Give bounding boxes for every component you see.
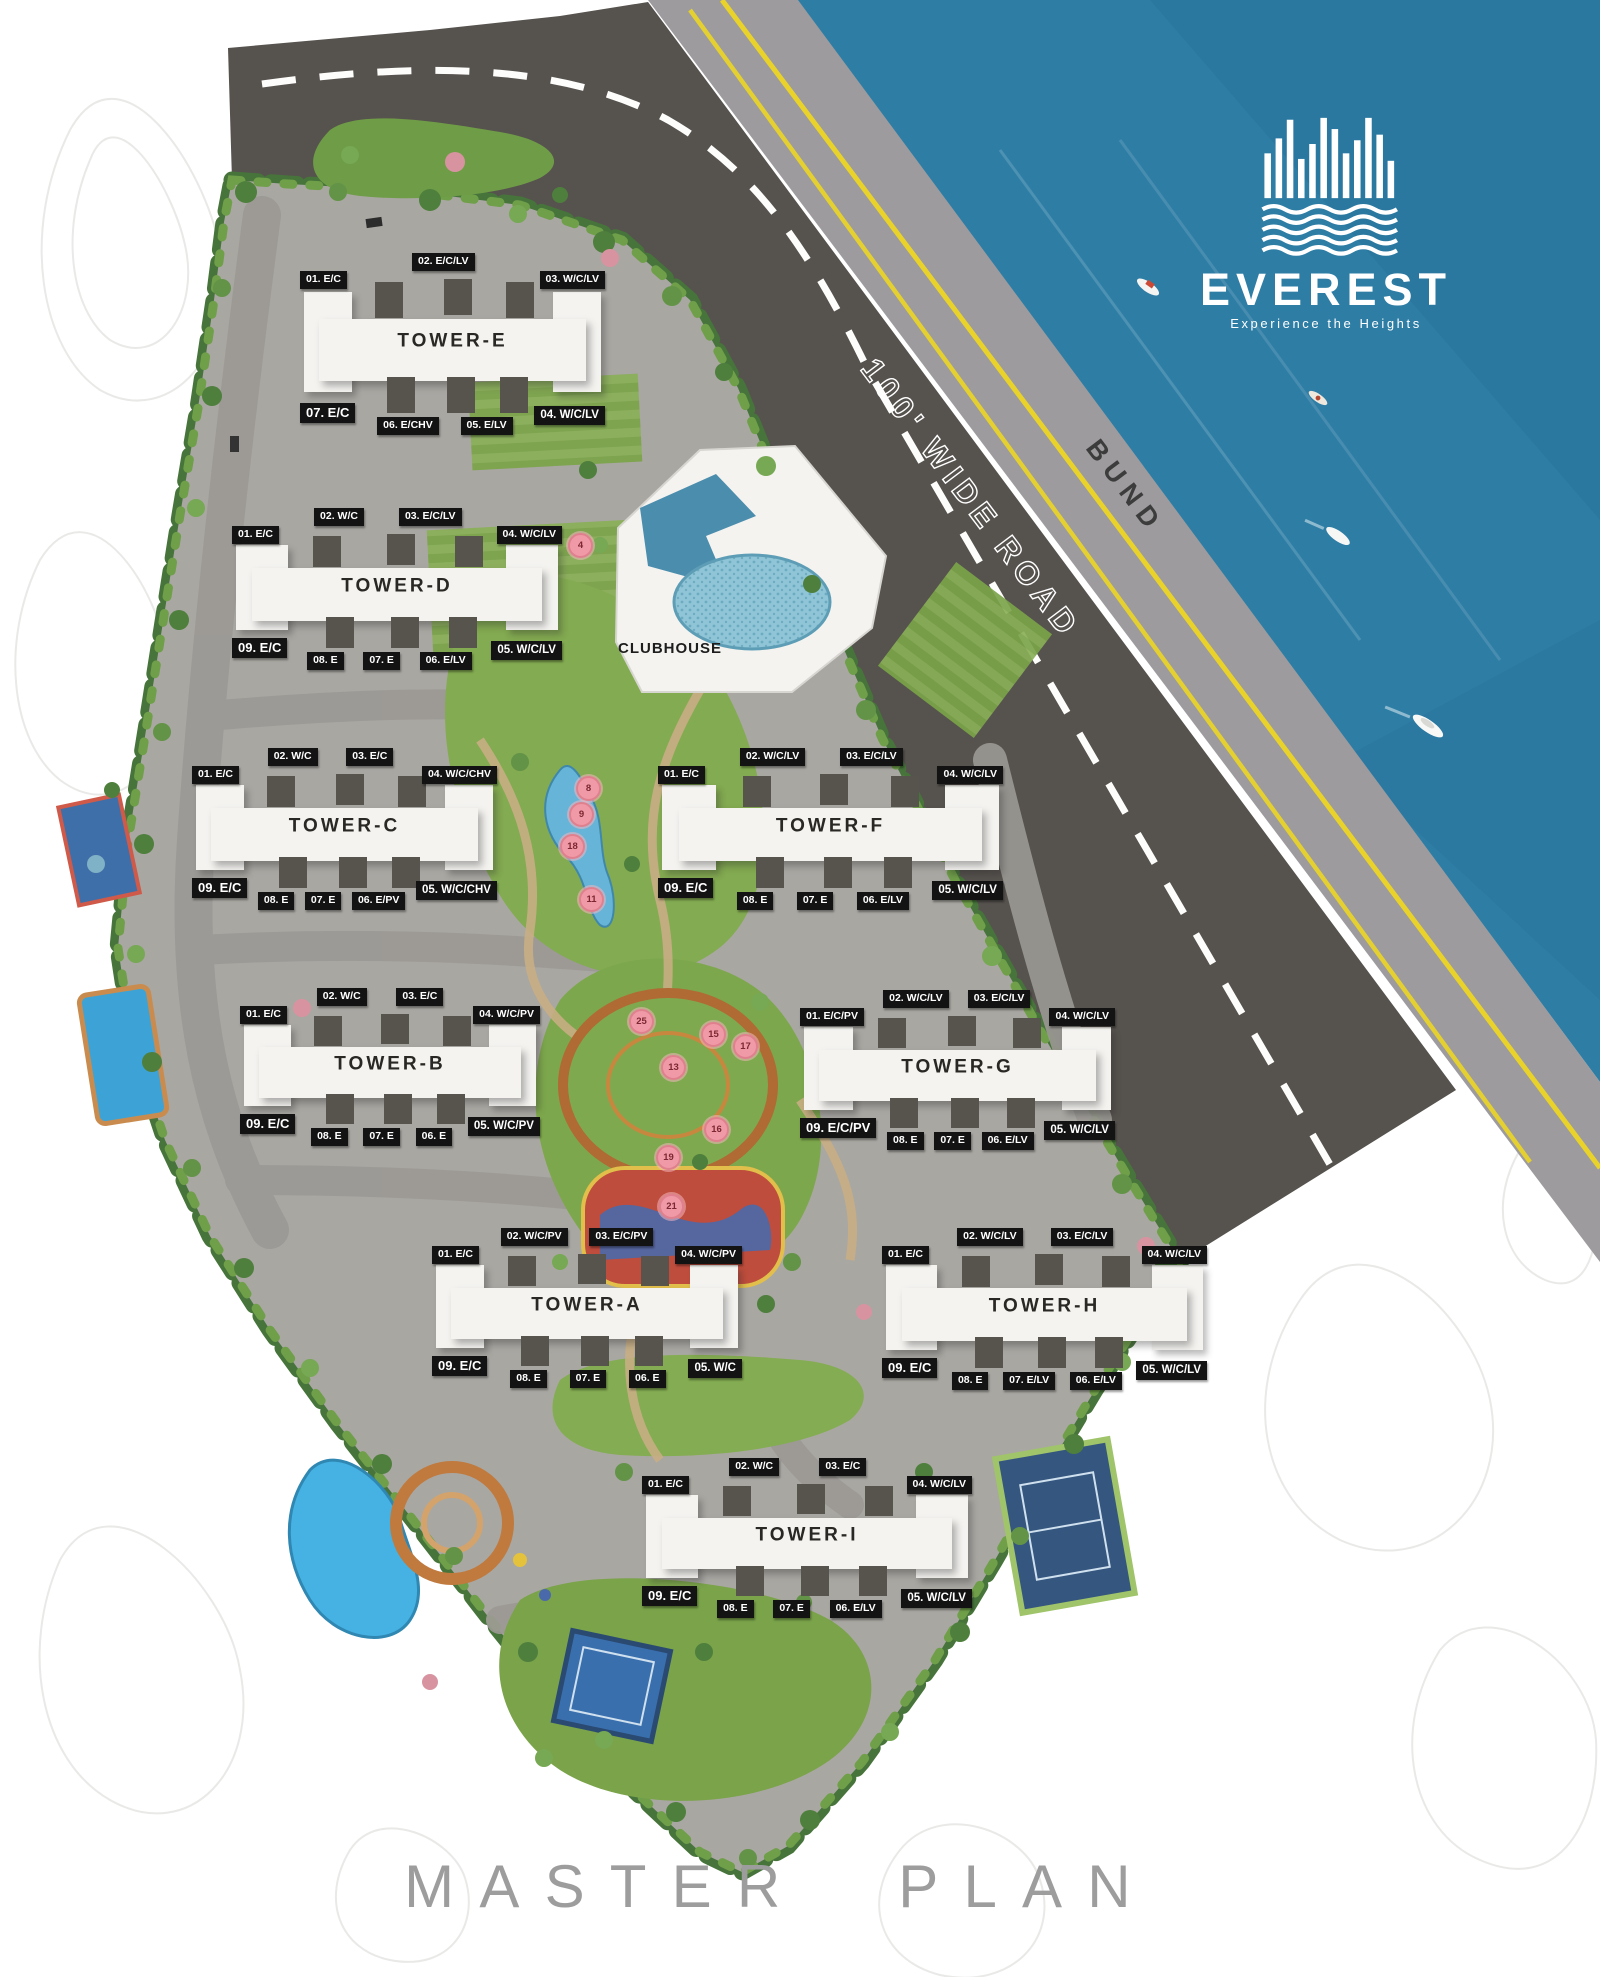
unit-chip: 08. E xyxy=(258,892,295,910)
unit-labels-bottom: 09. E/C 08. E 07. E 06. E/PV 05. W/C/CHV xyxy=(192,878,497,910)
unit-chip: 02. W/C/LV xyxy=(883,990,948,1008)
unit-chip: 06. E/LV xyxy=(830,1600,882,1618)
unit-chip: 02. W/C xyxy=(314,508,364,526)
unit-chip: 05. W/C/LV xyxy=(1136,1361,1207,1380)
unit-chip: 04. W/C/LV xyxy=(1142,1246,1207,1264)
unit-chip: 05. W/C/LV xyxy=(932,881,1003,900)
unit-chip: 05. W/C/LV xyxy=(1044,1121,1115,1140)
unit-labels-top: 01. E/C/PV 02. W/C/LV 03. E/C/LV 04. W/C… xyxy=(800,990,1115,1026)
unit-chip: 05. W/C/LV xyxy=(901,1589,972,1608)
unit-labels-top: 01. E/C 02. W/C/LV 03. E/C/LV 04. W/C/LV xyxy=(658,748,1003,784)
unit-chip: 01. E/C/PV xyxy=(800,1008,864,1026)
unit-chip: 03. E/C/LV xyxy=(840,748,903,766)
multipurpose-court xyxy=(554,1631,671,1742)
everest-logo-icon xyxy=(1246,116,1406,256)
amenity-marker: 15 xyxy=(701,1022,726,1047)
unit-chip: 06. E xyxy=(416,1128,453,1146)
unit-chip: 03. E/C xyxy=(396,988,443,1006)
unit-chip: 08. E xyxy=(952,1372,989,1390)
amenity-marker: 18 xyxy=(560,834,585,859)
unit-chip: 03. E/C xyxy=(346,748,393,766)
unit-chip: 02. W/C/PV xyxy=(501,1228,568,1246)
leisure-pool xyxy=(674,555,830,649)
unit-chip: 07. E xyxy=(797,892,834,910)
unit-chip: 06. E/LV xyxy=(857,892,909,910)
unit-chip: 09. E/C xyxy=(432,1356,487,1376)
unit-chip: 05. E/LV xyxy=(461,417,513,435)
unit-chip: 06. E/PV xyxy=(352,892,405,910)
unit-chip: 01. E/C xyxy=(882,1246,929,1264)
unit-labels-bottom: 09. E/C 08. E 07. E 06. E/LV 05. W/C/LV xyxy=(658,878,1003,910)
unit-labels-top: 01. E/C 02. W/C 03. E/C 04. W/C/PV xyxy=(240,988,540,1024)
tower-name: TOWER-H xyxy=(882,1295,1207,1317)
unit-chip: 09. E/C xyxy=(658,878,713,898)
tower-c: 01. E/C 02. W/C 03. E/C 04. W/C/CHV TOWE… xyxy=(192,748,497,910)
unit-chip: 01. E/C xyxy=(642,1476,689,1494)
unit-chip: 09. E/C xyxy=(642,1586,697,1606)
amenity-marker: 4 xyxy=(568,533,593,558)
everest-logo: EVEREST Experience the Heights xyxy=(1192,116,1460,331)
unit-chip: 09. E/C xyxy=(192,878,247,898)
unit-chip: 07. E xyxy=(363,1128,400,1146)
amenity-marker: 25 xyxy=(629,1009,654,1034)
unit-labels-bottom: 07. E/C 06. E/CHV 05. E/LV 04. W/C/LV xyxy=(300,403,605,435)
unit-chip: 02. W/C xyxy=(268,748,318,766)
unit-chip: 08. E xyxy=(887,1132,924,1150)
unit-labels-bottom: 09. E/C 08. E 07. E 06. E 05. W/C xyxy=(432,1356,742,1388)
unit-chip: 04. W/C/LV xyxy=(907,1476,972,1494)
unit-chip: 01. E/C xyxy=(232,526,279,544)
unit-chip: 09. E/C/PV xyxy=(800,1118,876,1138)
unit-chip: 01. E/C xyxy=(300,271,347,289)
unit-chip: 02. W/C/LV xyxy=(957,1228,1022,1246)
master-plan-canvas: BUND 100' WIDE ROAD xyxy=(0,0,1600,1977)
unit-labels-top: 01. E/C 02. W/C/LV 03. E/C/LV 04. W/C/LV xyxy=(882,1228,1207,1264)
unit-chip: 03. E/C xyxy=(819,1458,866,1476)
unit-chip: 04. W/C/CHV xyxy=(422,766,497,784)
unit-chip: 04. W/C/PV xyxy=(473,1006,540,1024)
unit-chip: 06. E/LV xyxy=(420,652,472,670)
unit-chip: 07. E xyxy=(305,892,342,910)
tower-name: TOWER-C xyxy=(192,815,497,837)
unit-chip: 05. W/C xyxy=(688,1359,742,1378)
tower-b: 01. E/C 02. W/C 03. E/C 04. W/C/PV TOWER… xyxy=(240,988,540,1146)
amenity-marker: 17 xyxy=(733,1034,758,1059)
tower-name: TOWER-G xyxy=(800,1056,1115,1078)
unit-chip: 03. W/C/LV xyxy=(540,271,605,289)
unit-chip: 02. W/C xyxy=(729,1458,779,1476)
tower-d: 01. E/C 02. W/C 03. E/C/LV 04. W/C/LV TO… xyxy=(232,508,562,670)
tower-name: TOWER-B xyxy=(240,1053,540,1075)
tower-name: TOWER-F xyxy=(658,815,1003,837)
brand-tagline: Experience the Heights xyxy=(1192,316,1460,331)
unit-chip: 04. W/C/LV xyxy=(497,526,562,544)
unit-chip: 01. E/C xyxy=(432,1246,479,1264)
unit-chip: 03. E/C/LV xyxy=(399,508,462,526)
unit-chip: 02. W/C/LV xyxy=(740,748,805,766)
unit-chip: 07. E/C xyxy=(300,403,355,423)
page-title: MASTER PLAN xyxy=(0,1852,1560,1921)
unit-chip: 04. W/C/LV xyxy=(534,406,605,425)
unit-chip: 08. E xyxy=(737,892,774,910)
unit-chip: 01. E/C xyxy=(192,766,239,784)
unit-chip: 06. E/CHV xyxy=(377,417,439,435)
unit-labels-top: 01. E/C 02. W/C 03. E/C 04. W/C/LV xyxy=(642,1458,972,1494)
unit-chip: 08. E xyxy=(307,652,344,670)
unit-chip: 07. E xyxy=(934,1132,971,1150)
unit-chip: 08. E xyxy=(717,1600,754,1618)
unit-chip: 04. W/C/LV xyxy=(1049,1008,1114,1026)
brand-name: EVEREST xyxy=(1192,267,1460,312)
unit-chip: 09. E/C xyxy=(232,638,287,658)
tower-name: TOWER-A xyxy=(432,1294,742,1316)
amenity-marker: 8 xyxy=(576,776,601,801)
amenity-marker: 19 xyxy=(656,1145,681,1170)
unit-chip: 07. E/LV xyxy=(1003,1372,1055,1390)
tower-e: 01. E/C 02. E/C/LV 03. W/C/LV TOWER-E 07… xyxy=(300,253,605,435)
unit-chip: 09. E/C xyxy=(882,1358,937,1378)
unit-labels-bottom: 09. E/C 08. E 07. E 06. E 05. W/C/PV xyxy=(240,1114,540,1146)
unit-chip: 03. E/C/PV xyxy=(589,1228,653,1246)
unit-chip: 03. E/C/LV xyxy=(968,990,1031,1008)
unit-chip: 08. E xyxy=(311,1128,348,1146)
unit-labels-bottom: 09. E/C/PV 08. E 07. E 06. E/LV 05. W/C/… xyxy=(800,1118,1115,1150)
unit-chip: 06. E xyxy=(629,1370,666,1388)
unit-chip: 03. E/C/LV xyxy=(1051,1228,1114,1246)
unit-labels-top: 01. E/C 02. E/C/LV 03. W/C/LV xyxy=(300,253,605,289)
unit-chip: 04. W/C/LV xyxy=(937,766,1002,784)
unit-chip: 06. E/LV xyxy=(1070,1372,1122,1390)
unit-chip: 07. E xyxy=(363,652,400,670)
tower-name: TOWER-D xyxy=(232,575,562,597)
unit-labels-top: 01. E/C 02. W/C 03. E/C/LV 04. W/C/LV xyxy=(232,508,562,544)
tower-name: TOWER-E xyxy=(300,330,605,352)
amenity-marker: 9 xyxy=(569,802,594,827)
unit-chip: 05. W/C/PV xyxy=(468,1117,540,1136)
unit-chip: 01. E/C xyxy=(240,1006,287,1024)
tower-h: 01. E/C 02. W/C/LV 03. E/C/LV 04. W/C/LV… xyxy=(882,1228,1207,1390)
unit-chip: 04. W/C/PV xyxy=(675,1246,742,1264)
unit-chip: 06. E/LV xyxy=(982,1132,1034,1150)
tower-name: TOWER-I xyxy=(642,1524,972,1546)
unit-labels-bottom: 09. E/C 08. E 07. E 06. E/LV 05. W/C/LV xyxy=(232,638,562,670)
unit-chip: 02. W/C xyxy=(317,988,367,1006)
amenity-marker: 16 xyxy=(704,1117,729,1142)
unit-labels-top: 01. E/C 02. W/C/PV 03. E/C/PV 04. W/C/PV xyxy=(432,1228,742,1264)
unit-labels-bottom: 09. E/C 08. E 07. E/LV 06. E/LV 05. W/C/… xyxy=(882,1358,1207,1390)
unit-chip: 05. W/C/CHV xyxy=(416,881,497,900)
unit-labels-bottom: 09. E/C 08. E 07. E 06. E/LV 05. W/C/LV xyxy=(642,1586,972,1618)
tennis-court xyxy=(995,1439,1134,1612)
unit-chip: 02. E/C/LV xyxy=(412,253,475,271)
amenity-marker: 11 xyxy=(579,887,604,912)
unit-chip: 09. E/C xyxy=(240,1114,295,1134)
unit-chip: 08. E xyxy=(510,1370,547,1388)
tower-f: 01. E/C 02. W/C/LV 03. E/C/LV 04. W/C/LV… xyxy=(658,748,1003,910)
tower-i: 01. E/C 02. W/C 03. E/C 04. W/C/LV TOWER… xyxy=(642,1458,972,1618)
tower-a: 01. E/C 02. W/C/PV 03. E/C/PV 04. W/C/PV… xyxy=(432,1228,742,1388)
clubhouse-label: CLUBHOUSE xyxy=(618,640,722,657)
unit-chip: 07. E xyxy=(773,1600,810,1618)
amenity-marker: 13 xyxy=(661,1055,686,1080)
unit-chip: 07. E xyxy=(570,1370,607,1388)
unit-labels-top: 01. E/C 02. W/C 03. E/C 04. W/C/CHV xyxy=(192,748,497,784)
amenity-marker: 21 xyxy=(659,1194,684,1219)
unit-chip: 01. E/C xyxy=(658,766,705,784)
unit-chip: 05. W/C/LV xyxy=(491,641,562,660)
tower-g: 01. E/C/PV 02. W/C/LV 03. E/C/LV 04. W/C… xyxy=(800,990,1115,1150)
